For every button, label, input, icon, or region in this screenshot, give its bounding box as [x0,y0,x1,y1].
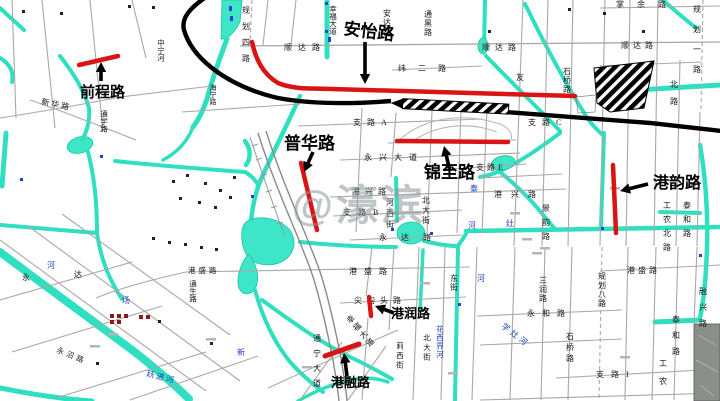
street-label: 支路I [596,369,636,379]
street-label: 顺达路 [284,42,326,52]
street-label: 泰和路 [672,314,681,363]
street-label: 工农 [659,359,668,395]
street-label: 三润路 [539,276,548,303]
highlighted-road-label: 锦至路 [424,162,476,182]
street-label: 北大街 [422,334,431,363]
street-label: 纬二路 [398,63,458,73]
inset-box [694,324,720,401]
highlighted-road-label: 普华路 [284,133,336,153]
street-label: 通生路 [188,279,197,303]
pointer-arrow-head [620,184,631,194]
highlighted-road-label: 港韵路 [653,173,702,192]
street-label: 港兴路 [352,186,391,196]
street-label: 通黑路 [424,9,433,37]
street-label: 尖沟头路 [354,295,406,305]
street-label: 新 [237,347,245,357]
highlighted-road-segment [369,297,371,316]
pointer-arrow [630,184,648,189]
street-label: 河 [468,220,476,230]
street-label: 掌余路 [616,0,679,9]
bridge-markers [20,2,702,306]
street-label: 融兴路 [699,286,708,335]
highlighted-road-segment [397,141,508,142]
highlighted-road-segment [79,56,118,65]
street-label: 学灶河 [500,321,532,349]
street-label: 支路B [343,207,385,217]
street-label: 通宁大道 [313,333,322,394]
street-label: 北路 [670,80,679,114]
striped-road-band [390,98,508,114]
street-label: 莉西街 [395,341,404,371]
highlighted-road-segment [613,165,616,233]
street-label: 永达路 [379,232,445,242]
street-label: 泰和路 [683,200,692,243]
street-label: 中宁河 [156,38,165,62]
street-label: 东街 [450,273,459,292]
street-label: 河 [47,260,55,270]
street-label: 顺达路 [482,42,521,52]
pointer-arrow-head [96,62,106,72]
street-label: 港兴路 [494,189,545,199]
street-label: 港盛路 [627,265,660,275]
street-label: 河 [477,273,485,283]
pointer-arrow [308,152,313,163]
street-label: 工农北路 [663,201,672,257]
street-label: 支路C [528,117,567,127]
street-label: 永和路 [527,308,572,318]
street-label: 支路A [353,117,393,127]
street-label: 石桥路 [566,332,575,365]
street-label: 港盛路 [188,265,220,275]
street-label: 达 [74,269,82,279]
street-label: 泰 [470,183,478,193]
street-label: 北大街 [422,196,431,226]
street-label: 通学路 [99,109,108,133]
street-label: 规划一路 [693,4,702,85]
street-label: 支路E [476,162,506,172]
highlighted-road-label: 港润路 [391,306,431,321]
street-label: 河西街 [386,197,395,231]
street-label: 景韵路 [542,204,551,246]
street-label: 海宁路 [209,83,217,106]
highlighted-road-label: 港融路 [331,375,371,390]
street-label: 永兴大道 [364,152,424,162]
hatched-zone [594,61,654,112]
map-screenshot: 顺达路规划四路幸福大道安达路通黑路纬二路支路A掌余路顺达路顺达路石桥路友支路C规… [0,0,720,401]
street-label: 灶 [506,218,514,228]
street-label: 永沼路 [55,345,88,366]
street-label: 永 [22,272,30,282]
highlighted-road-label: 前程路 [80,83,126,101]
street-label: 规划八路 [598,271,607,308]
street-label: 花西界河 [435,324,444,359]
street-label: 规划四路 [242,5,251,70]
street-label: 港盛路 [349,266,394,276]
pointer-arrow-head [360,74,370,84]
highlighted-road-segment [301,163,317,230]
map-canvas: 顺达路规划四路幸福大道安达路通黑路纬二路支路A掌余路顺达路顺达路石桥路友支路C规… [0,0,720,401]
street-label: 友 [516,72,524,82]
street-label: 场 [122,296,130,305]
street-label: 幸福大道 [328,5,337,37]
street-label: 顺达路 [621,40,657,50]
street-label: 石桥路 [563,67,572,94]
